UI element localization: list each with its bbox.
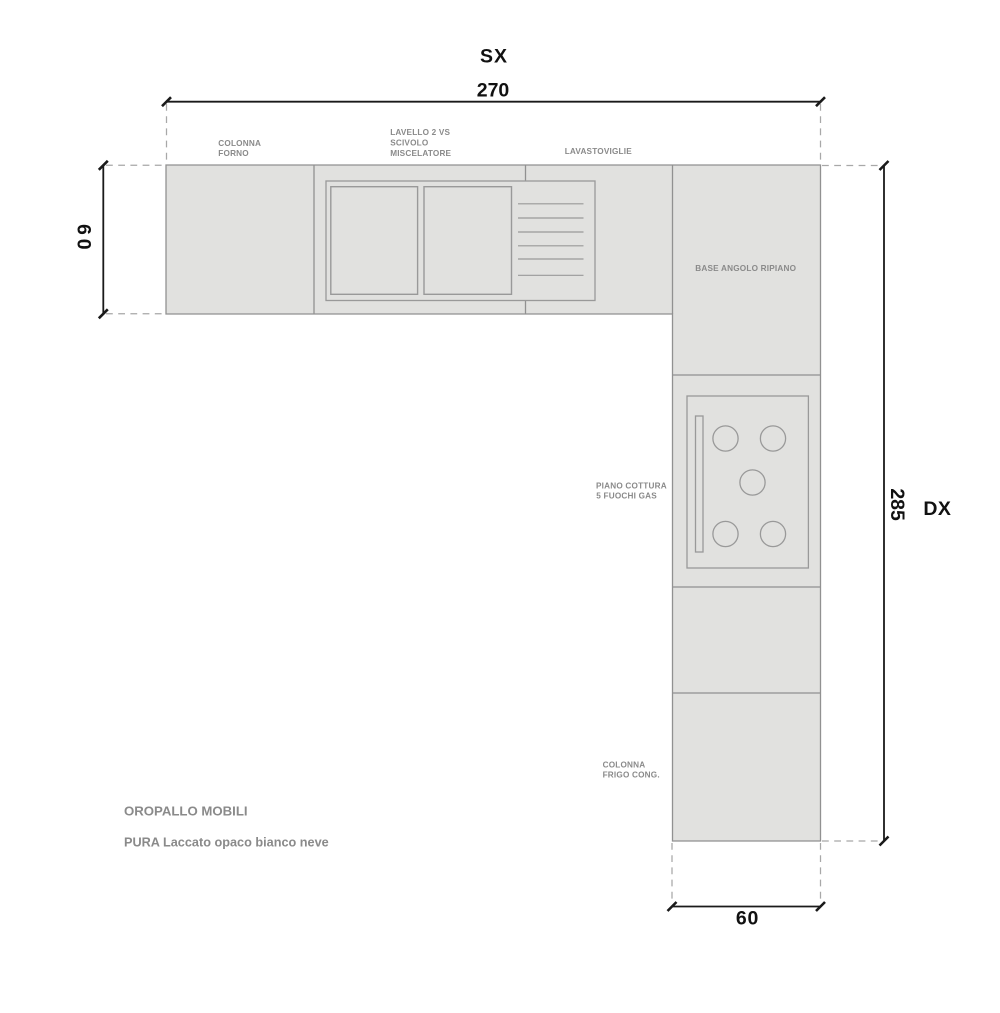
svg-text:FORNO: FORNO <box>218 149 249 158</box>
svg-text:SX: SX <box>480 46 508 68</box>
svg-text:FRIGO CONG.: FRIGO CONG. <box>603 771 660 780</box>
svg-text:COLONNA: COLONNA <box>603 761 646 770</box>
svg-text:60: 60 <box>73 224 95 254</box>
svg-text:285: 285 <box>886 488 908 521</box>
svg-text:PURA Laccato opaco bianco neve: PURA Laccato opaco bianco neve <box>124 835 329 849</box>
svg-text:SCIVOLO: SCIVOLO <box>390 138 429 147</box>
svg-text:MISCELATORE: MISCELATORE <box>390 149 451 158</box>
svg-text:60: 60 <box>736 908 759 930</box>
svg-text:DX: DX <box>923 498 951 520</box>
svg-text:LAVASTOVIGLIE: LAVASTOVIGLIE <box>565 147 633 156</box>
svg-text:PIANO COTTURA: PIANO COTTURA <box>596 482 667 491</box>
svg-text:COLONNA: COLONNA <box>218 139 261 148</box>
svg-text:LAVELLO 2 VS: LAVELLO 2 VS <box>390 128 450 137</box>
svg-text:OROPALLO MOBILI: OROPALLO MOBILI <box>124 804 248 819</box>
svg-text:BASE ANGOLO RIPIANO: BASE ANGOLO RIPIANO <box>695 264 796 273</box>
svg-text:270: 270 <box>477 80 510 102</box>
svg-text:5 FUOCHI GAS: 5 FUOCHI GAS <box>596 492 657 501</box>
